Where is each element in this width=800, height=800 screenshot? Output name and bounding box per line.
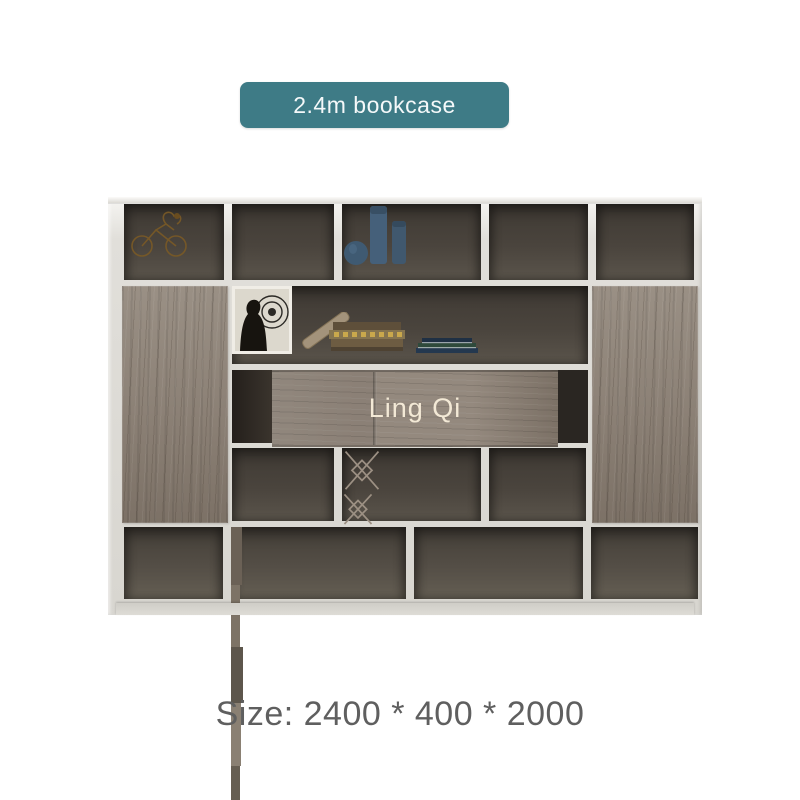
framed-portrait-print-icon: [232, 286, 292, 354]
shelf-cell-bottom-4: [591, 527, 698, 599]
shelf-cell-bottom-1: [124, 527, 223, 599]
size-caption: Size: 2400 * 400 * 2000: [0, 690, 800, 738]
wire-cyclist-sculpture-icon: [124, 204, 200, 258]
left-wood-door: [122, 286, 228, 523]
display-shelf-cell: [232, 286, 588, 364]
bookcase-plinth: [116, 603, 694, 615]
side-book-slot: [558, 370, 588, 443]
right-wood-door: [592, 286, 698, 523]
shelf-cell-bottom-3: [414, 527, 583, 599]
bookcase-top-surface: [108, 197, 702, 204]
shelf-cell-bottom-2: [231, 527, 406, 599]
product-badge: 2.4m bookcase: [240, 82, 509, 128]
shelf-cell-lower-1: [232, 448, 334, 521]
shelf-cell-top-2: [232, 204, 334, 280]
carved-boxes-group: [342, 448, 481, 526]
product-image: 2.4m bookcase: [0, 0, 800, 800]
blue-vases-icon: [342, 204, 412, 266]
vintage-book-row-icon: [231, 527, 406, 800]
shelf-cell-top-4: [489, 204, 588, 280]
sliding-door-cabinet: Ling Qi: [272, 370, 558, 447]
shelf-cell-lower-2: [342, 448, 481, 521]
flat-book-stack-icon: [416, 336, 482, 354]
brand-watermark: Ling Qi: [369, 393, 462, 424]
shelf-cell-lower-3: [489, 448, 586, 521]
vertical-book-spines-icon: [560, 377, 586, 443]
bookcase-photo: Ling Qi: [108, 197, 702, 615]
sliding-door-left-panel: [272, 372, 373, 445]
carved-box-small-icon: [342, 492, 374, 526]
carved-box-large-icon: [342, 448, 382, 492]
antique-book-stack-icon: [296, 312, 411, 354]
shelf-cell-top-3: [342, 204, 481, 280]
size-caption-label: Size: 2400 * 400 * 2000: [216, 695, 585, 734]
shelf-cell-top-5: [596, 204, 694, 280]
badge-label: 2.4m bookcase: [293, 92, 455, 119]
cabinet-recess: [232, 370, 272, 443]
shelf-cell-top-1: [124, 204, 224, 280]
